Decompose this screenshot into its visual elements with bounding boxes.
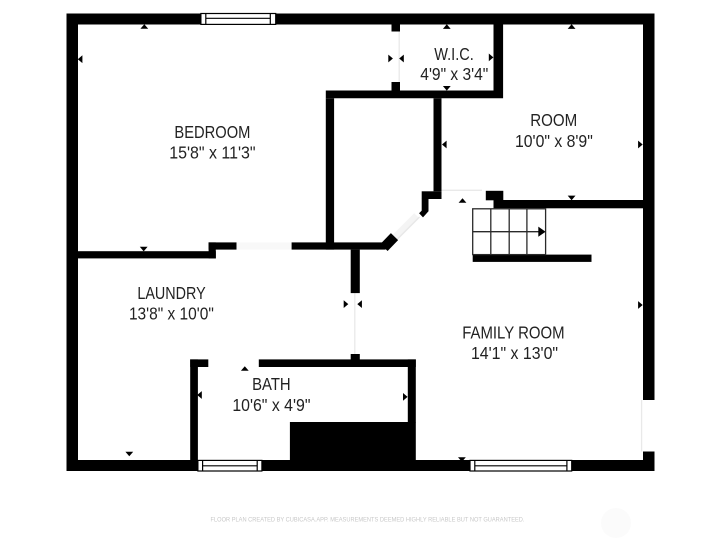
svg-text:BEDROOM: BEDROOM <box>174 122 250 142</box>
svg-text:FLOOR PLAN CREATED BY CUBICASA: FLOOR PLAN CREATED BY CUBICASA.APP. MEAS… <box>211 517 525 524</box>
svg-text:W.I.C.: W.I.C. <box>434 44 474 64</box>
svg-text:14'1" x 13'0": 14'1" x 13'0" <box>471 343 558 363</box>
svg-text:ROOM: ROOM <box>530 110 577 130</box>
svg-text:10'6" x 4'9": 10'6" x 4'9" <box>232 395 310 415</box>
svg-text:4'9" x 3'4": 4'9" x 3'4" <box>420 64 488 84</box>
svg-text:BATH: BATH <box>252 374 291 394</box>
svg-text:10'0" x 8'9": 10'0" x 8'9" <box>515 131 593 151</box>
svg-text:LAUNDRY: LAUNDRY <box>137 283 206 303</box>
svg-text:13'8" x 10'0": 13'8" x 10'0" <box>129 303 214 323</box>
svg-text:FAMILY ROOM: FAMILY ROOM <box>462 322 564 342</box>
svg-text:15'8" x 11'3": 15'8" x 11'3" <box>169 143 255 163</box>
